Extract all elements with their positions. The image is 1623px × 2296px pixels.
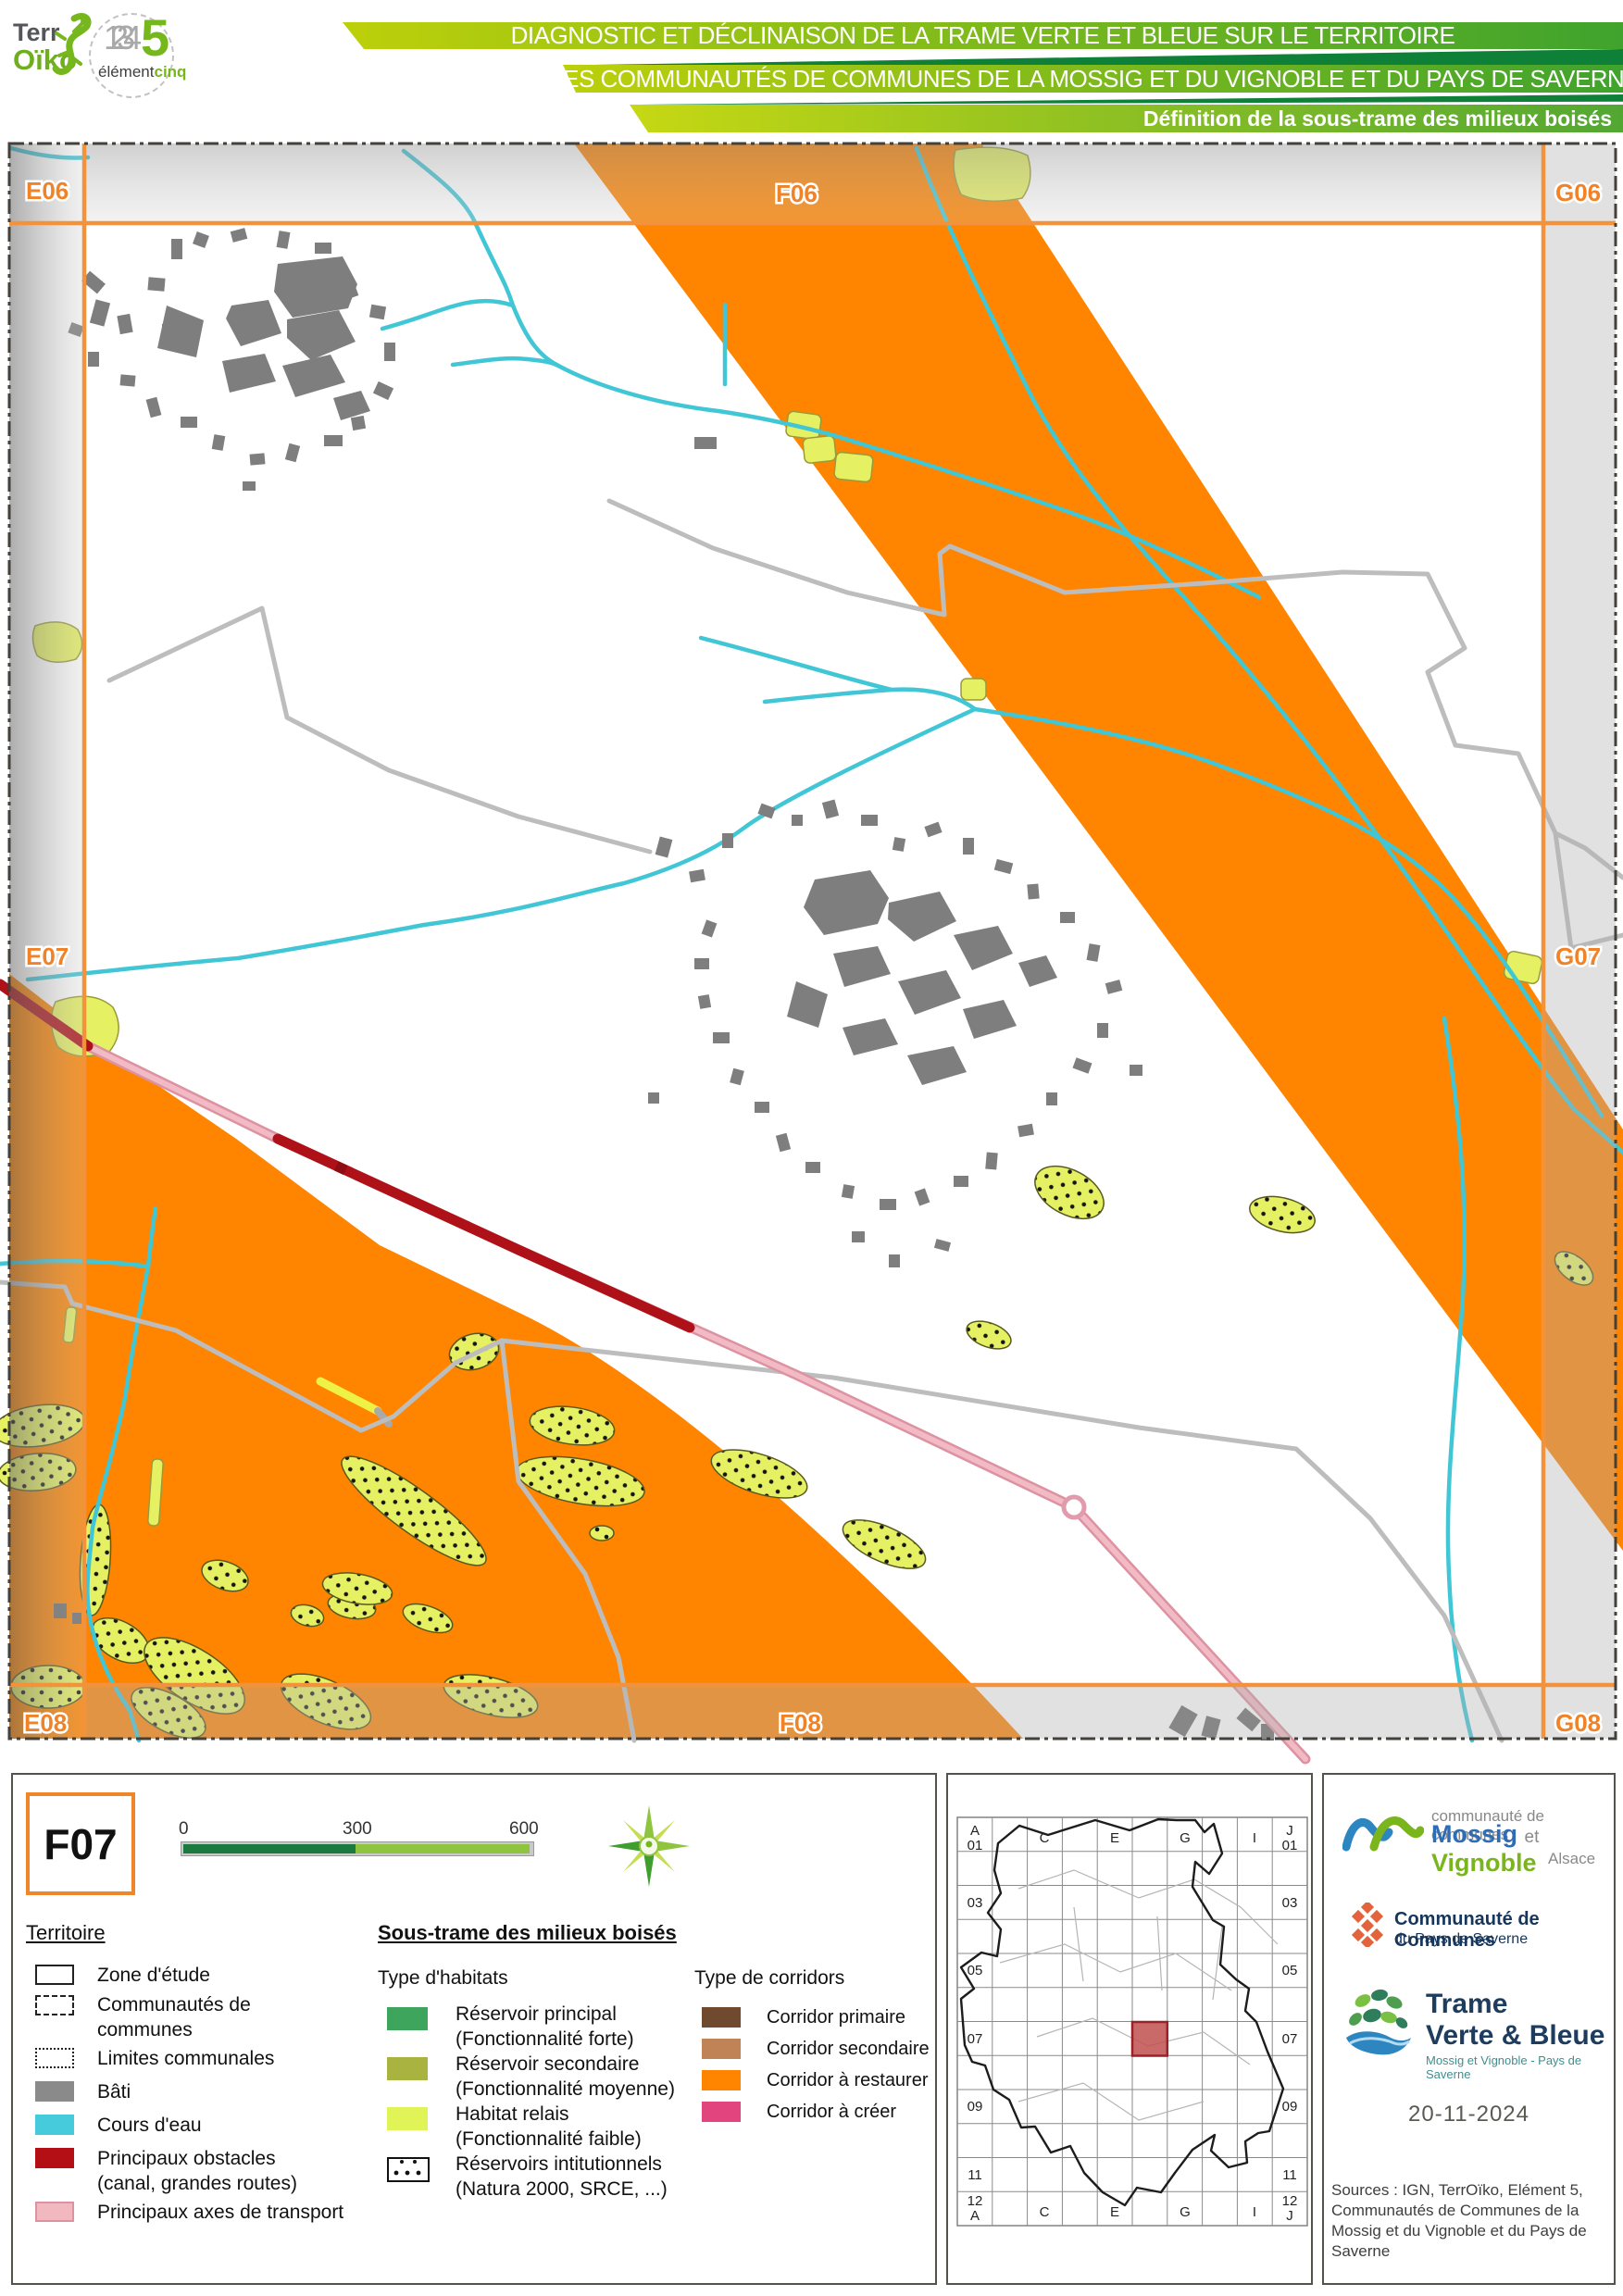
map-date: 20-11-2024 <box>1322 2102 1616 2128</box>
svg-text:09: 09 <box>968 2099 983 2115</box>
title-line1: DIAGNOSTIC ET DÉCLINAISON DE LA TRAME VE… <box>343 22 1623 49</box>
svg-text:05: 05 <box>1282 1963 1298 1978</box>
habitats-heading: Type d'habitats <box>378 1967 508 1990</box>
swatch-axes-transport <box>35 2202 74 2222</box>
legend-item-label: Corridor à créer <box>767 2100 896 2125</box>
swatch-reservoir-principal <box>387 2007 428 2030</box>
elementcinq-digits: 1234 <box>104 19 130 57</box>
swatch-cours-eau <box>35 2115 74 2135</box>
svg-text:01: 01 <box>1282 1838 1298 1853</box>
line1: Réservoir principal <box>456 2003 617 2025</box>
svg-text:E: E <box>1110 2204 1119 2220</box>
title-wedge <box>593 49 1623 65</box>
scalebar-start: 0 <box>179 1819 189 1840</box>
swatch-limites <box>35 2048 74 2068</box>
svg-text:A: A <box>970 1823 980 1839</box>
grid-label-e06: E06 <box>26 177 69 205</box>
vignoble-word: Vignoble <box>1431 1849 1537 1877</box>
legend-item-label: Principaux axes de transport <box>97 2200 343 2225</box>
line2: (Fonctionnalité moyenne) <box>456 2078 675 2100</box>
grid-label-e08: E08 <box>24 1709 67 1737</box>
line2: (canal, grandes routes) <box>97 2173 297 2194</box>
line1: Communautés de <box>97 1994 251 2015</box>
grid-label-f08: F08 <box>780 1709 821 1737</box>
elementcinq-five: 5 <box>141 7 169 68</box>
svg-text:I: I <box>1253 2204 1256 2220</box>
roundabout <box>1064 1497 1084 1517</box>
et-word: et <box>1525 1828 1540 1847</box>
svg-text:09: 09 <box>1282 2099 1298 2115</box>
main-map: E06 F06 G06 E07 G07 E08 F08 G08 <box>0 0 1623 1768</box>
grid-label-g07: G07 <box>1555 942 1601 970</box>
swatch-corridor-creer <box>702 2102 741 2122</box>
tvb-line2: Verte & Bleue <box>1426 2020 1604 2052</box>
svg-text:J: J <box>1286 1823 1293 1839</box>
grid-label-g08: G08 <box>1555 1709 1601 1737</box>
svg-text:12: 12 <box>1282 2193 1298 2209</box>
subtitle-wedge <box>639 94 1623 105</box>
legend-item-label: Principaux obstacles(canal, grandes rout… <box>97 2146 297 2196</box>
svg-text:G: G <box>1180 2204 1191 2220</box>
mossig-name: Mossig et Vignoble <box>1431 1820 1623 1878</box>
saverne-sub: du Pays de Saverne <box>1394 1931 1528 1948</box>
svg-text:I: I <box>1253 1830 1256 1846</box>
svg-text:E: E <box>1110 1830 1119 1846</box>
header: Terr Oïko 1234 5 élémentcinq DIAGNOSTIC … <box>0 0 1623 119</box>
corridors-heading: Type de corridors <box>694 1967 844 1990</box>
line1: Principaux obstacles <box>97 2148 276 2169</box>
scalebar-seg2 <box>356 1844 530 1853</box>
svg-text:03: 03 <box>1282 1895 1298 1911</box>
grid-label-g06: G06 <box>1555 179 1601 206</box>
sources-text: Sources : IGN, TerrOïko, Elément 5, Comm… <box>1331 2180 1600 2262</box>
swatch-corridor-primaire <box>702 2007 741 2028</box>
swatch-reservoir-secondaire <box>387 2057 428 2080</box>
svg-text:03: 03 <box>968 1895 983 1911</box>
elementcinq-name2: cinq <box>154 63 186 81</box>
legend-item-label: Corridor primaire <box>767 2005 905 2030</box>
line1: Habitat relais <box>456 2103 569 2125</box>
svg-text:05: 05 <box>968 1963 983 1978</box>
locator-territory-outline <box>961 1819 1283 2205</box>
legend-item-label: Habitat relais(Fonctionnalité faible) <box>456 2102 642 2152</box>
line2: (Natura 2000, SRCE, ...) <box>456 2178 668 2200</box>
locator-map: A 01 J 01 C E G I 03 05 07 09 11 03 05 0… <box>946 1773 1313 2285</box>
scalebar: 0 300 600 m <box>181 1819 532 1858</box>
swatch-habitat-relais <box>387 2107 428 2130</box>
legend-item-label: Zone d'étude <box>97 1963 210 1988</box>
line1: Réservoirs intitutionnels <box>456 2153 662 2175</box>
svg-text:07: 07 <box>968 2031 983 2047</box>
grid-label-f06: F06 <box>776 180 818 207</box>
svg-text:C: C <box>1040 1830 1050 1846</box>
grid-label-e07: E07 <box>26 942 69 970</box>
scalebar-track <box>181 1841 534 1856</box>
soustrame-heading: Sous-trame des milieux boisés <box>378 1921 677 1945</box>
legend-item-label: Réservoir principal(Fonctionnalité forte… <box>456 2002 634 2052</box>
swatch-obstacles <box>35 2148 74 2168</box>
alsace-text: Alsace <box>1548 1850 1595 1868</box>
svg-text:G: G <box>1180 1830 1191 1846</box>
trame-verte-bleue-icon <box>1341 1986 1415 2060</box>
legend-item-label: Communautés decommunes <box>97 1992 251 2042</box>
svg-text:01: 01 <box>968 1838 983 1853</box>
tile-id-box: F07 <box>26 1792 135 1895</box>
scalebar-mid: 300 <box>343 1819 372 1840</box>
swatch-zone-etude <box>35 1965 74 1985</box>
elementcinq-name: élémentcinq <box>98 63 186 81</box>
swatch-bati <box>35 2081 74 2102</box>
svg-text:11: 11 <box>968 2167 982 2183</box>
line2: (Fonctionnalité forte) <box>456 2028 634 2050</box>
legend-item-label: Bâti <box>97 2079 131 2104</box>
legend-item-label: Corridor secondaire <box>767 2037 930 2062</box>
scalebar-seg1 <box>183 1844 356 1853</box>
svg-text:J: J <box>1286 2208 1293 2224</box>
locator-highlight-f07 <box>1132 2022 1167 2056</box>
legend-item-label: Corridor à restaurer <box>767 2068 929 2093</box>
map-subtitle: Définition de la sous-trame des milieux … <box>630 105 1623 132</box>
legend-item-label: Limites communales <box>97 2046 274 2071</box>
line1: Réservoir secondaire <box>456 2053 639 2075</box>
legend-item-label: Réservoir secondaire(Fonctionnalité moye… <box>456 2052 675 2102</box>
svg-text:07: 07 <box>1282 2031 1298 2047</box>
line2: communes <box>97 2019 193 2040</box>
line2: (Fonctionnalité faible) <box>456 2128 642 2150</box>
legend-item-label: Réservoirs intitutionnels(Natura 2000, S… <box>456 2152 668 2202</box>
swatch-communautes <box>35 1995 74 2015</box>
swatch-reservoirs-institutionnels <box>387 2157 430 2182</box>
svg-text:A: A <box>970 2208 980 2224</box>
svg-text:11: 11 <box>1282 2167 1297 2183</box>
svg-text:12: 12 <box>968 2193 983 2209</box>
compass-rose-icon <box>606 1803 692 1889</box>
territoire-heading: Territoire <box>26 1921 106 1945</box>
mossig-vignoble-icon <box>1342 1810 1424 1854</box>
tvb-sub: Mossig et Vignoble - Pays de Saverne <box>1426 2053 1623 2081</box>
svg-text:C: C <box>1040 2204 1050 2220</box>
legend-item-label: Cours d'eau <box>97 2113 202 2138</box>
pays-saverne-icon <box>1350 1903 1387 1947</box>
swatch-corridor-secondaire <box>702 2039 741 2059</box>
terroiko-gecko-icon <box>46 11 94 76</box>
mossig-word: Mossig <box>1431 1820 1517 1848</box>
swatch-corridor-restaurer <box>702 2070 741 2090</box>
elementcinq-name1: élément <box>98 63 154 81</box>
title-line2: DES COMMUNAUTÉS DE COMMUNES DE LA MOSSIG… <box>563 65 1623 93</box>
tvb-line1: Trame <box>1426 1989 1507 2020</box>
locator-communes <box>1000 1870 1278 2120</box>
